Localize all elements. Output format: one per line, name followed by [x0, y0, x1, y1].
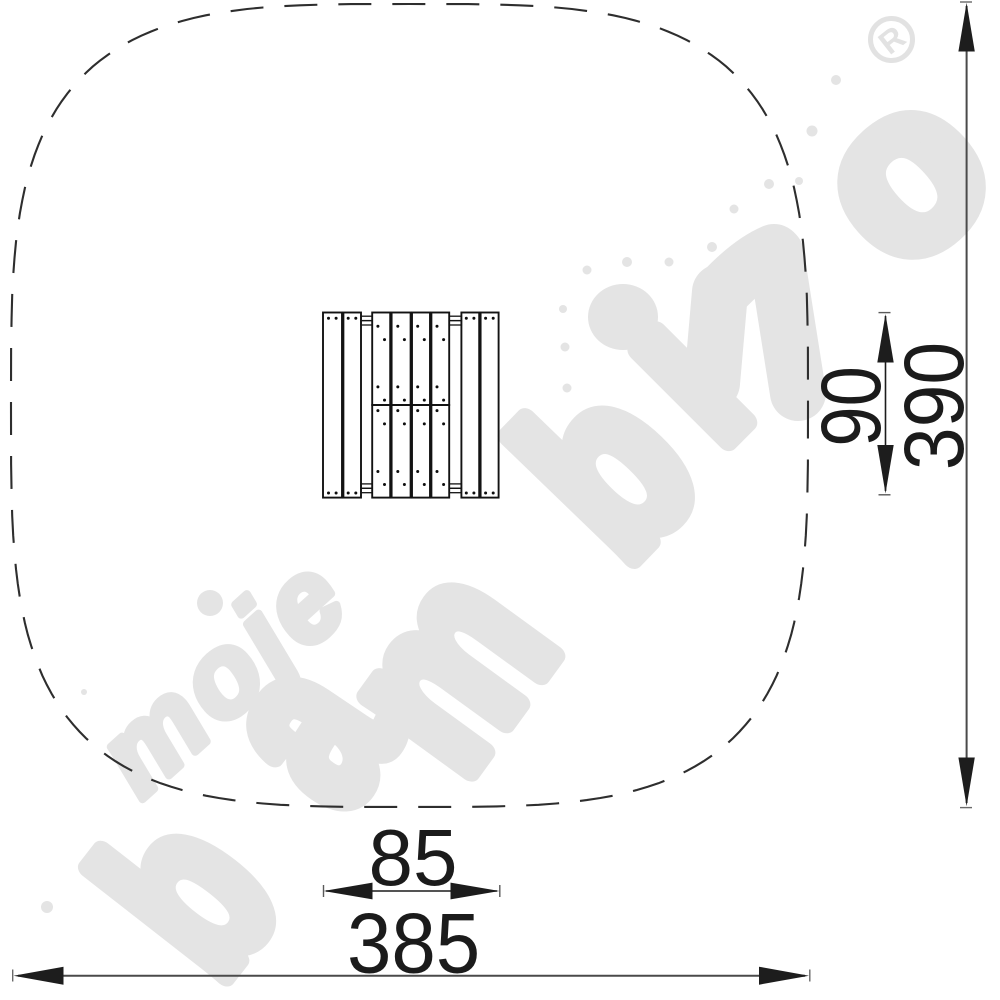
svg-text:85: 85: [369, 813, 458, 902]
svg-text:90: 90: [804, 366, 898, 446]
svg-text:385: 385: [347, 896, 480, 991]
svg-text:b: b: [46, 766, 325, 1000]
svg-text:390: 390: [888, 342, 982, 470]
